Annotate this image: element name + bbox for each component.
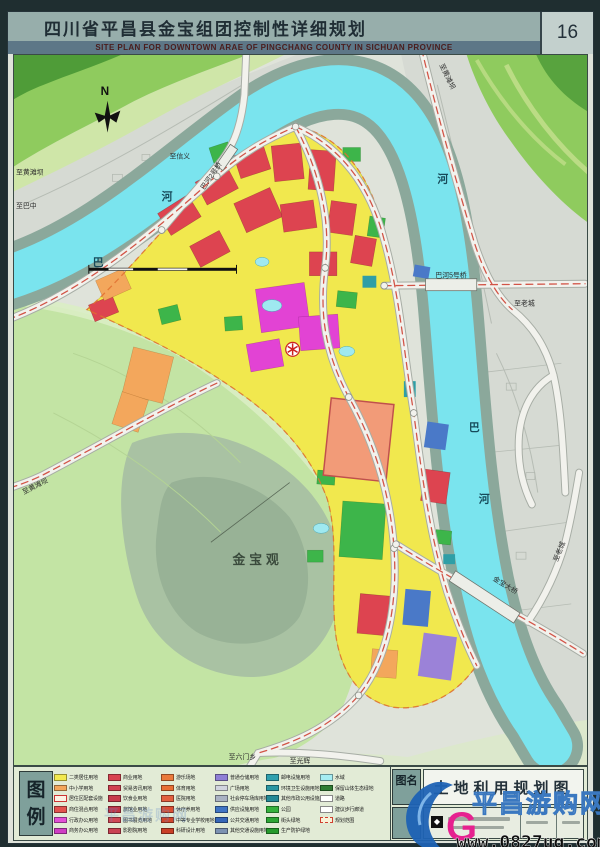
legend-chip	[54, 817, 67, 824]
legend-label: 旅馆业用地	[123, 806, 147, 813]
legend-label: 建议步行廊道	[335, 806, 364, 813]
legend-item: 科研设计用地	[161, 825, 214, 836]
legend-item: 游乐场地	[161, 772, 214, 783]
legend-label: 邮电设施用地	[281, 774, 310, 781]
river-label: 河	[479, 491, 490, 505]
legend-chip	[108, 795, 121, 802]
legend-chip	[161, 785, 174, 792]
legend-item: 生产防护绿地	[266, 825, 329, 836]
legend-item: 贸易咨讯用地	[108, 783, 152, 794]
legend-label: 商业用地	[123, 774, 142, 781]
titleblock-divider	[556, 808, 557, 838]
institute-text-bar	[448, 826, 504, 829]
legend-label: 居住区配套设施	[69, 795, 103, 802]
legend-item: 社会停车场库用地	[215, 793, 268, 804]
legend-label: 社会停车场库用地	[230, 795, 268, 802]
legend-label: 其他交通设施用地	[230, 827, 268, 834]
legend-chip	[108, 785, 121, 792]
legend-label: 科研设计用地	[176, 827, 205, 834]
legend-item: 广场用地	[215, 783, 268, 794]
river-label: 巴	[93, 256, 104, 269]
legend-column: 普通仓储用地广场用地社会停车场库用地供应设施用地公共交通用地其他交通设施用地	[215, 772, 268, 836]
titleblock-divider	[520, 808, 521, 838]
edge-label-liumenxiang: 至六门乡	[229, 752, 257, 761]
legend-item: 其他交通设施用地	[215, 825, 268, 836]
legend-chip	[215, 828, 228, 835]
sheet-name-label-box: 图名	[392, 769, 421, 805]
edge-label-huangtanba-left: 至黄滩坝	[16, 167, 44, 176]
river-label: 巴	[469, 421, 480, 434]
legend-chip	[54, 795, 67, 802]
legend-chip	[266, 774, 279, 781]
legend-item: 休疗养用地	[161, 804, 214, 815]
legend-chip	[161, 795, 174, 802]
legend-label: 普通仓储用地	[230, 774, 259, 781]
page-subtitle: SITE PLAN FOR DOWNTOWN ARAE OF PINGCHANG…	[8, 41, 540, 54]
legend-column: 水域保留山体生态绿地道路建议步行廊道规划范围	[320, 772, 373, 825]
legend-chip	[266, 806, 279, 813]
legend-label: 贸易咨讯用地	[123, 785, 152, 792]
legend-chip	[161, 806, 174, 813]
plan-sheet: 四川省平昌县金宝组团控制性详细规划 SITE PLAN FOR DOWNTOWN…	[7, 11, 594, 844]
legend-label: 影剧院用地	[123, 827, 147, 834]
bridge-5-deck	[426, 279, 477, 291]
edge-label-bazhong: 至巴中	[16, 201, 37, 210]
legend-label: 公园	[281, 806, 291, 813]
legend-chip	[215, 774, 228, 781]
legend-chip	[266, 817, 279, 824]
legend-label: 环境卫生设施用地	[281, 785, 319, 792]
legend-label: 商务办公用地	[69, 827, 98, 834]
legend-item: 水域	[320, 772, 373, 783]
legend-item: 行政办公用地	[54, 815, 103, 826]
legend-grid: 二类居住用地中小学用地居住区配套设施商住混合用地行政办公用地商务办公用地商业用地…	[14, 767, 390, 840]
legend-chip	[108, 817, 121, 824]
legend-label: 道路	[335, 795, 345, 802]
legend-item: 道路	[320, 793, 373, 804]
legend-label: 医院用地	[176, 795, 195, 802]
legend-chip	[266, 785, 279, 792]
page-number: 16	[540, 12, 593, 54]
legend-panel: 图例 二类居住用地中小学用地居住区配套设施商住混合用地行政办公用地商务办公用地商…	[13, 766, 588, 841]
legend-label: 水域	[335, 774, 345, 781]
legend-item: 图书展览用地	[108, 815, 152, 826]
title-bar: 四川省平昌县金宝组团控制性详细规划 SITE PLAN FOR DOWNTOWN…	[8, 12, 593, 54]
legend-label: 供应设施用地	[230, 806, 259, 813]
sheet-name: 土地利用规划图	[423, 769, 584, 805]
legend-chip	[54, 806, 67, 813]
place-label-jinbaoguan: 金宝观	[232, 552, 283, 567]
legend-chip	[108, 828, 121, 835]
legend-label: 图书展览用地	[123, 817, 152, 824]
map-canvas: N	[13, 54, 588, 766]
legend-item: 旅馆业用地	[108, 804, 152, 815]
plan-sheet-page: 四川省平昌县金宝组团控制性详细规划 SITE PLAN FOR DOWNTOWN…	[0, 0, 600, 847]
sheet-meta-label-box	[392, 807, 421, 839]
edge-label-guanghui: 至光辉	[290, 756, 311, 765]
center-star-symbol	[286, 342, 300, 356]
legend-chip	[320, 795, 333, 802]
legend-item: 商业用地	[108, 772, 152, 783]
edge-label-laocheng-right: 至老城	[514, 299, 535, 308]
legend-column: 游乐场地体育用地医院用地休疗养用地中等专业学校用地科研设计用地	[161, 772, 214, 836]
legend-item: 居住区配套设施	[54, 793, 103, 804]
legend-label: 公共交通用地	[230, 817, 259, 824]
legend-item: 中等专业学校用地	[161, 815, 214, 826]
legend-label: 体育用地	[176, 785, 195, 792]
legend-label: 行政办公用地	[69, 817, 98, 824]
legend-chip	[320, 817, 333, 824]
legend-chip	[215, 806, 228, 813]
legend-item: 二类居住用地	[54, 772, 103, 783]
legend-item: 保留山体生态绿地	[320, 783, 373, 794]
legend-chip	[161, 774, 174, 781]
legend-column: 二类居住用地中小学用地居住区配套设施商住混合用地行政办公用地商务办公用地	[54, 772, 103, 836]
legend-column: 商业用地贸易咨讯用地饮食业用地旅馆业用地图书展览用地影剧院用地	[108, 772, 152, 836]
river-label: 河	[437, 171, 448, 185]
legend-item: 医院用地	[161, 793, 214, 804]
bridge-5-label: 巴河5号桥	[435, 271, 466, 280]
legend-label: 保留山体生态绿地	[335, 785, 373, 792]
institute-text-bar	[526, 821, 548, 824]
legend-item: 饮食业用地	[108, 793, 152, 804]
legend-chip	[215, 795, 228, 802]
legend-chip	[215, 817, 228, 824]
legend-label: 二类居住用地	[69, 774, 98, 781]
institute-text-bar	[448, 817, 510, 821]
legend-item: 供应设施用地	[215, 804, 268, 815]
titleblock-info-row: ◆	[423, 807, 584, 839]
legend-chip	[108, 806, 121, 813]
legend-label: 街头绿地	[281, 817, 300, 824]
institute-logo: ◆	[431, 816, 443, 828]
legend-divider	[390, 767, 391, 840]
legend-item: 公共交通用地	[215, 815, 268, 826]
north-label: N	[101, 84, 110, 98]
legend-chip	[320, 774, 333, 781]
legend-chip	[54, 785, 67, 792]
legend-item: 商住混合用地	[54, 804, 103, 815]
legend-chip	[320, 785, 333, 792]
legend-label: 规划范围	[335, 817, 354, 824]
legend-item: 规划范围	[320, 815, 373, 826]
legend-label: 广场用地	[230, 785, 249, 792]
legend-item: 体育用地	[161, 783, 214, 794]
institute-text-bar	[562, 821, 580, 824]
legend-label: 休疗养用地	[176, 806, 200, 813]
legend-chip	[54, 828, 67, 835]
legend-label: 饮食业用地	[123, 795, 147, 802]
legend-chip	[54, 774, 67, 781]
legend-item: 商务办公用地	[54, 825, 103, 836]
legend-chip	[108, 774, 121, 781]
legend-chip	[161, 828, 174, 835]
land-use-map: N	[14, 55, 587, 765]
legend-item: 普通仓储用地	[215, 772, 268, 783]
legend-label: 生产防护绿地	[281, 827, 310, 834]
legend-chip	[161, 817, 174, 824]
legend-chip	[215, 785, 228, 792]
legend-label: 商住混合用地	[69, 806, 98, 813]
legend-item: 建议步行廊道	[320, 804, 373, 815]
river-label: 河	[162, 189, 173, 203]
legend-chip	[266, 795, 279, 802]
legend-chip	[266, 828, 279, 835]
legend-item: 中小学用地	[54, 783, 103, 794]
page-title: 四川省平昌县金宝组团控制性详细规划	[44, 15, 367, 40]
legend-item: 影剧院用地	[108, 825, 152, 836]
legend-label: 中等专业学校用地	[176, 817, 214, 824]
edge-label-xinyi: 至信义	[170, 151, 191, 160]
legend-chip	[320, 806, 333, 813]
legend-label: 中小学用地	[69, 785, 93, 792]
legend-label: 游乐场地	[176, 774, 195, 781]
